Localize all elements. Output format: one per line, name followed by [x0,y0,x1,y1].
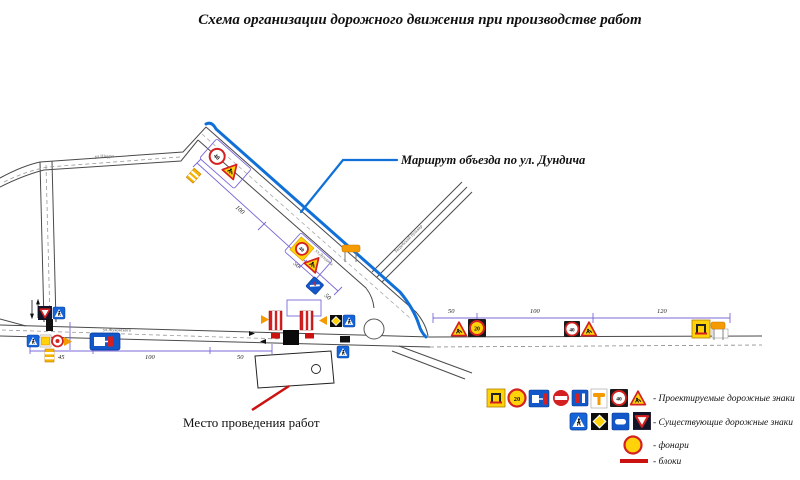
secondary-road-edge [372,182,472,282]
work-site-label: Место проведения работ [183,415,320,430]
info-sign [40,335,51,347]
dimension-label: 100 [530,308,541,315]
secondary-road-south-edge [392,346,472,379]
detour-route-leader [301,160,397,212]
position-marker [312,365,321,374]
pedestrian-crossing-sign-icon [570,413,587,430]
direction-arrow-icon [261,315,269,324]
right-sign-group-1: 20 [452,319,486,337]
lantern-stand-sign-icon [591,389,607,408]
lantern-legend-icon [625,437,642,454]
scheme-drawing: Схема организации дорожного движения при… [0,0,800,480]
road-block [340,336,350,343]
barrier-board-icon [300,311,313,330]
pedestrian-crossing-sign-icon [53,307,65,319]
pedestrian-crossing-sign-icon [343,315,355,327]
left-sign-group [27,333,120,362]
right-sign-group-3 [692,320,728,340]
legend-projected-signs-icons: 20 [487,389,645,408]
left-road-edge [52,161,56,322]
street-label: ул.Жуковского [103,327,132,333]
speed-limit-value: 40 [569,327,575,333]
roadworks-sign-icon [631,391,646,404]
main-road-sign-icon [591,413,608,430]
dimension-label: 45 [58,354,65,361]
work-site-building [255,351,334,388]
speed-limit-value: 40 [616,396,622,402]
main-road-dashed-edge [430,345,762,347]
detour-route-line [206,123,426,337]
dimension-label: 50 [237,354,244,361]
top-road-edge [0,140,198,187]
speed-limit-40-icon: 40 [610,389,628,407]
roundabout [364,319,384,339]
yield-sign-icon [38,306,52,320]
direction-arrow-icon [64,337,72,346]
detour-road-centerline [202,134,410,318]
left-road-edge [40,162,44,322]
yield-sign-icon [633,412,651,430]
traffic-direction-arrows [31,300,40,318]
work-site-leader [252,386,289,410]
right-sign-group-2: 40 [564,321,596,337]
lane-arrow-icon [260,339,266,344]
roadworks-sign-icon [452,322,467,335]
road-block [46,319,53,331]
legend-lanterns-label: - фонари [653,440,689,451]
main-road-sign-icon [330,315,342,327]
detour-arrow-sign [306,276,324,294]
lantern-stand-icon [711,322,728,340]
pedestrian-crossing-sign-icon [337,346,349,358]
detour-route-label: Маршрут объезда по ул. Дундича [400,153,585,167]
detour-scheme-sign [90,333,120,350]
direction-arrow-icon [319,316,327,325]
dimension-label: 100 [145,354,156,361]
legend-projected-label: - Проектируемые дорожные знаки [653,393,795,404]
lantern-icon [186,168,201,183]
roadworks-sign-icon [582,322,597,335]
detour-road-edge [198,140,374,308]
road-closure-block [283,330,299,345]
works-board-sign [692,320,710,338]
prohibition-sign-core [56,339,60,343]
red-block [305,333,314,339]
barrier-board-icon [269,311,282,330]
legend-existing-signs-icons [570,412,651,430]
dimension-label: 120 [657,308,668,315]
page-title: Схема организации дорожного движения при… [198,12,641,28]
dimension-label: 50 [448,308,455,315]
traffic-scheme-page: Схема организации дорожного движения при… [0,0,800,480]
dimension-label: 50 [323,292,333,302]
street-label: Загребский бульвар [393,223,424,254]
works-board-sign-icon [487,389,505,407]
road-centerlines [2,134,762,347]
detour-direction-sign-icon [572,390,588,406]
detour-route [206,123,426,337]
detour-scheme-sign-icon [529,390,549,407]
top-road-centerline [4,157,180,182]
lantern-icon [45,349,54,362]
legend-existing-label: - Существующие дорожные знаки [653,417,793,428]
no-entry-sign-icon [553,390,569,406]
bus-stop-sign-icon [612,413,629,430]
left-road-centerline [46,165,50,320]
speed-limit-value: 20 [514,396,521,403]
red-block [271,333,280,339]
speed-limit-value: 20 [474,326,480,332]
street-label: ул.Шкуро [95,153,115,159]
legend-blocks-label: - блоки [653,456,682,467]
top-road-edge [0,127,206,178]
legend: 20 [487,389,795,467]
pedestrian-crossing-sign-icon [27,335,39,347]
